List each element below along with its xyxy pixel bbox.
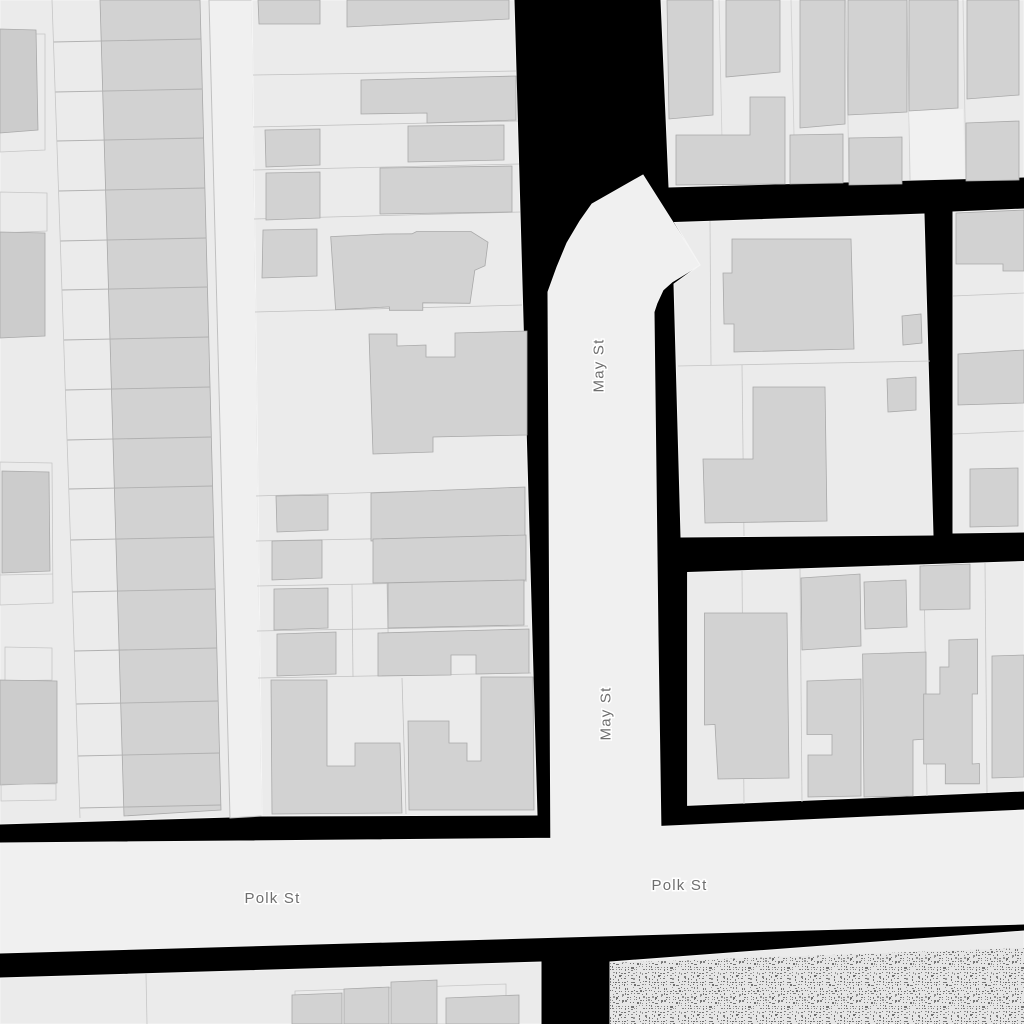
svg-text:Polk St: Polk St	[245, 890, 301, 907]
svg-text:Polk St: Polk St	[652, 877, 708, 894]
svg-text:May St: May St	[598, 687, 615, 741]
svg-text:May St: May St	[591, 339, 608, 393]
